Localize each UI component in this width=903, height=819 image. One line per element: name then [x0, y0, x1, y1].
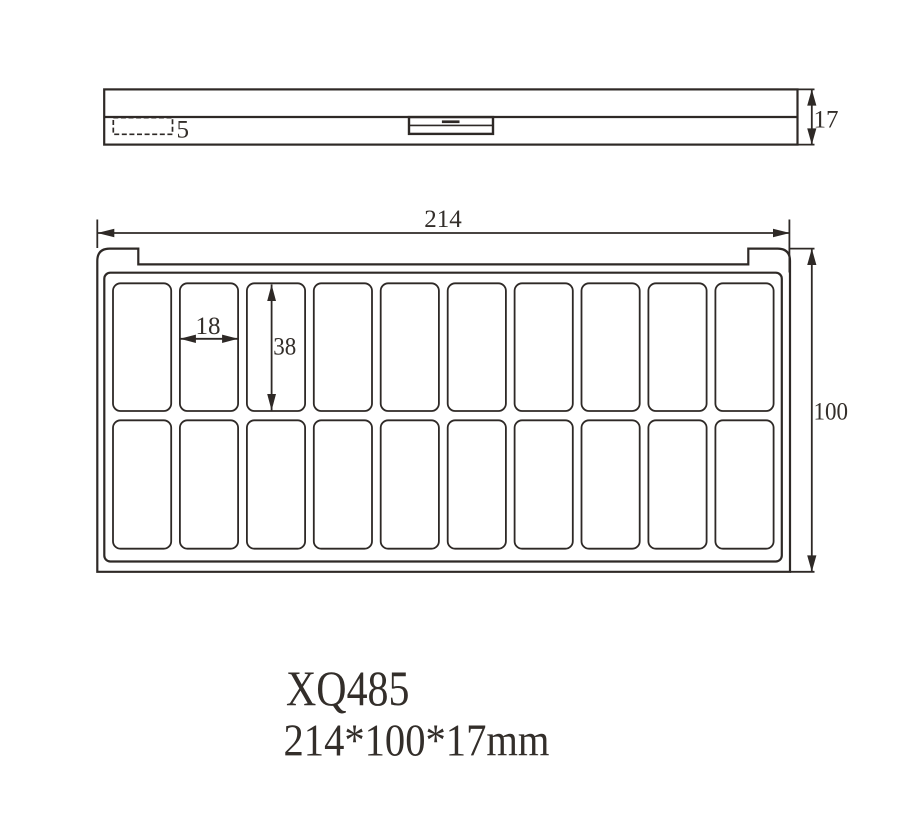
- svg-text:100: 100: [814, 398, 849, 425]
- svg-text:214: 214: [424, 206, 462, 233]
- svg-text:5: 5: [177, 117, 190, 144]
- svg-text:18: 18: [196, 313, 221, 340]
- svg-text:38: 38: [273, 333, 296, 360]
- svg-text:17: 17: [814, 106, 839, 133]
- svg-text:214*100*17mm: 214*100*17mm: [284, 715, 550, 766]
- svg-text:XQ485: XQ485: [286, 660, 410, 716]
